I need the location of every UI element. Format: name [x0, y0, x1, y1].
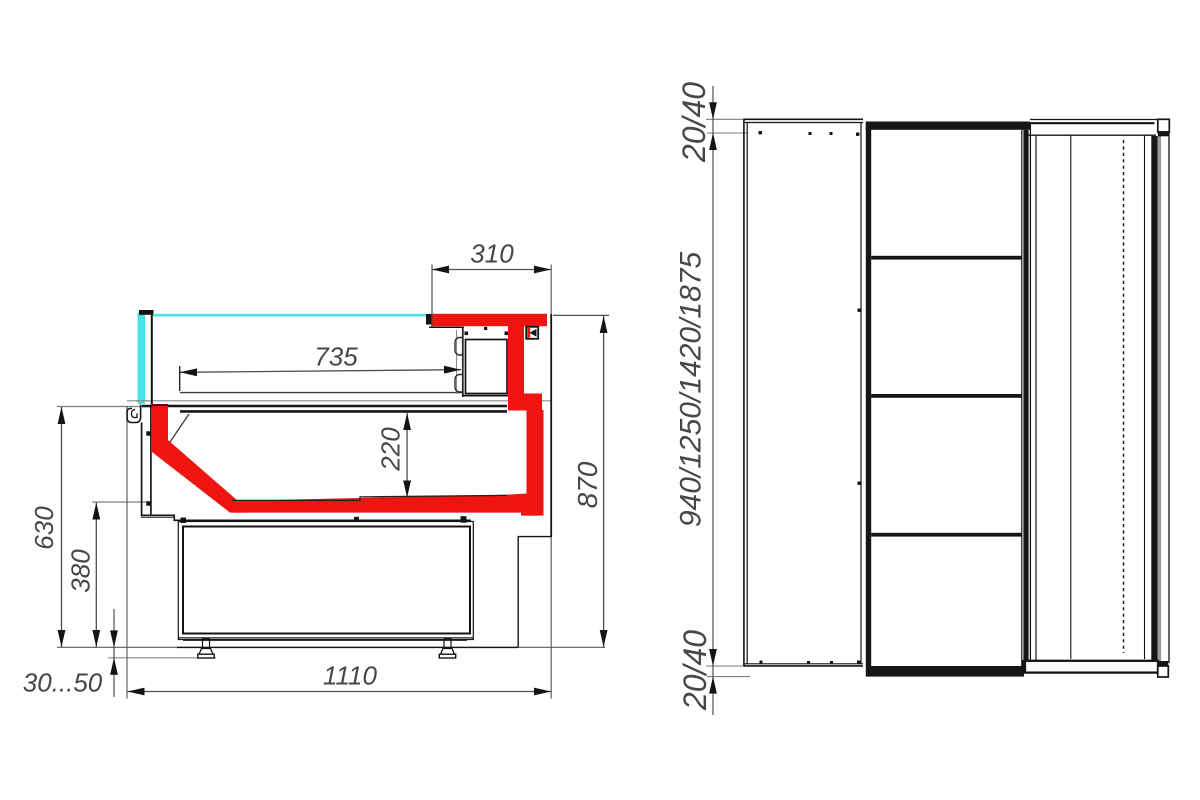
svg-text:870: 870 [572, 461, 603, 508]
svg-text:630: 630 [29, 506, 59, 550]
svg-text:940/1250/1420/1875: 940/1250/1420/1875 [675, 252, 708, 528]
svg-text:30...50: 30...50 [23, 668, 103, 698]
svg-text:735: 735 [314, 342, 358, 372]
svg-text:310: 310 [470, 239, 514, 269]
svg-text:1110: 1110 [323, 661, 378, 691]
svg-text:220: 220 [376, 427, 406, 472]
svg-text:20/40: 20/40 [676, 82, 712, 163]
svg-text:380: 380 [66, 549, 96, 593]
svg-text:20/40: 20/40 [677, 630, 713, 711]
